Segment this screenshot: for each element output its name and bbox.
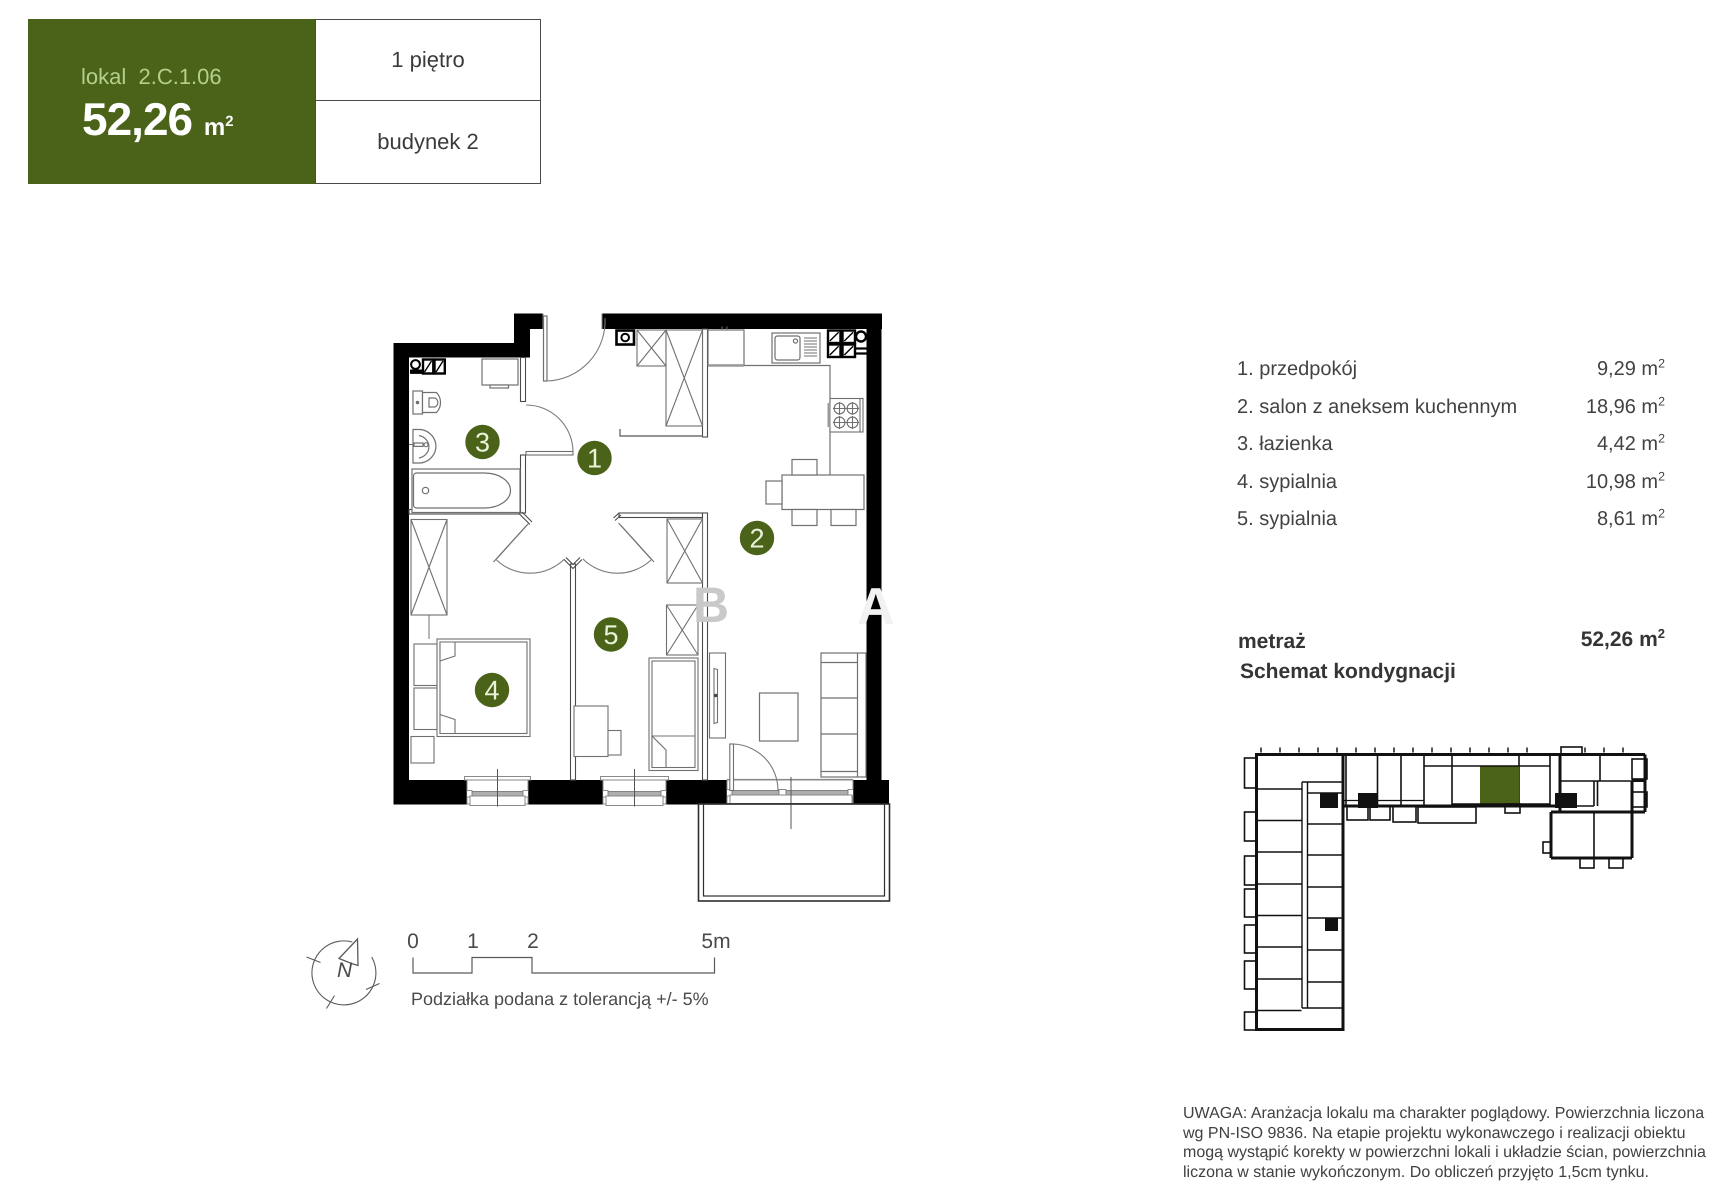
svg-text:1: 1 [587, 444, 602, 474]
svg-text:A: A [857, 578, 895, 636]
svg-text:0: 0 [407, 930, 419, 953]
svg-text:2: 2 [527, 930, 539, 953]
svg-text:4: 4 [484, 676, 499, 706]
svg-text:2: 2 [749, 524, 764, 554]
svg-text:5: 5 [603, 620, 618, 650]
svg-text:N: N [337, 959, 353, 982]
svg-text:3: 3 [475, 428, 490, 458]
svg-text:5m: 5m [701, 930, 730, 953]
svg-text:B: B [693, 577, 729, 633]
svg-text:1: 1 [467, 930, 479, 953]
